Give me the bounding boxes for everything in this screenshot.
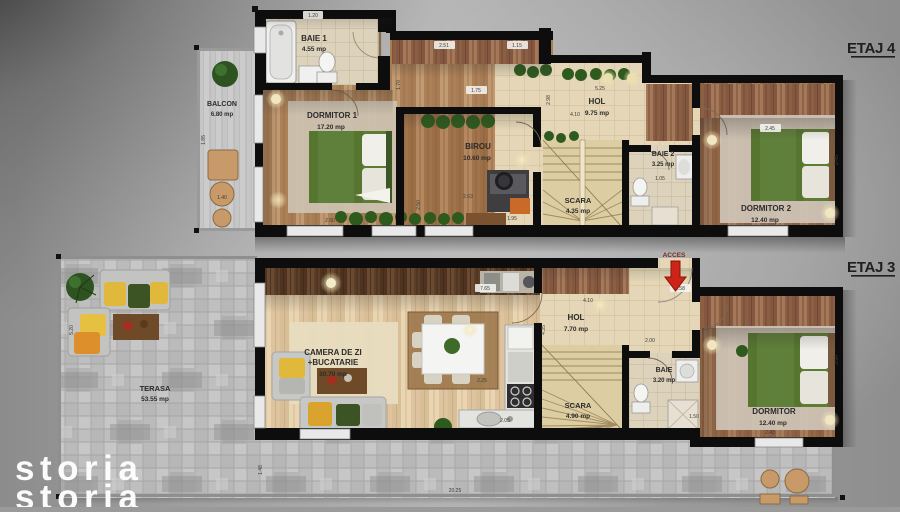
svg-text:12.40 mp: 12.40 mp <box>751 217 779 224</box>
svg-text:BALCON: BALCON <box>207 101 237 108</box>
svg-text:1.20: 1.20 <box>308 13 318 19</box>
svg-text:BAIE 2: BAIE 2 <box>652 151 675 158</box>
svg-text:5.25: 5.25 <box>595 86 605 92</box>
svg-text:53.55 mp: 53.55 mp <box>141 396 169 403</box>
svg-text:BAIE 1: BAIE 1 <box>301 34 327 43</box>
svg-text:4.90 mp: 4.90 mp <box>566 413 590 420</box>
svg-text:DORMITOR 2: DORMITOR 2 <box>741 204 792 213</box>
svg-text:BAIE: BAIE <box>656 367 673 374</box>
svg-text:ETAJ 4: ETAJ 4 <box>847 40 896 57</box>
svg-text:1.48: 1.48 <box>258 465 264 475</box>
svg-text:4.35 mp: 4.35 mp <box>566 208 590 215</box>
svg-text:4.55 mp: 4.55 mp <box>302 46 326 53</box>
svg-text:4.10: 4.10 <box>570 112 580 118</box>
svg-text:20.25: 20.25 <box>449 488 462 494</box>
svg-text:9.75 mp: 9.75 mp <box>585 110 609 117</box>
svg-text:1.75: 1.75 <box>471 88 481 94</box>
svg-text:2.45: 2.45 <box>765 126 775 132</box>
svg-text:7.70 mp: 7.70 mp <box>564 326 588 333</box>
svg-text:ACCES: ACCES <box>663 252 686 259</box>
svg-text:12.40 mp: 12.40 mp <box>759 420 787 427</box>
svg-text:storia: storia <box>15 478 143 507</box>
svg-text:2.63: 2.63 <box>463 194 473 200</box>
svg-text:2.25: 2.25 <box>477 378 487 384</box>
svg-text:2.05: 2.05 <box>500 418 510 424</box>
svg-text:HOL: HOL <box>589 97 606 106</box>
svg-text:1.50: 1.50 <box>689 414 699 420</box>
svg-text:2.50: 2.50 <box>325 218 335 224</box>
svg-text:TERASA: TERASA <box>140 384 171 393</box>
svg-text:SCARA: SCARA <box>565 401 592 410</box>
svg-text:6.80 mp: 6.80 mp <box>211 112 234 118</box>
svg-text:17.20 mp: 17.20 mp <box>317 124 345 131</box>
svg-text:1.95: 1.95 <box>507 216 517 222</box>
svg-text:2.45: 2.45 <box>834 155 840 165</box>
svg-text:2.98: 2.98 <box>546 95 552 105</box>
svg-text:2.50: 2.50 <box>416 200 422 210</box>
svg-text:DORMITOR: DORMITOR <box>752 407 796 416</box>
svg-text:2.43: 2.43 <box>765 430 775 436</box>
svg-text:4.35: 4.35 <box>541 325 547 335</box>
svg-text:HOL: HOL <box>568 313 585 322</box>
svg-text:DORMITOR 1: DORMITOR 1 <box>307 111 358 120</box>
svg-text:30.70 mp: 30.70 mp <box>319 371 347 378</box>
svg-text:SCARA: SCARA <box>565 196 592 205</box>
svg-text:1.15: 1.15 <box>512 43 522 49</box>
svg-text:BIROU: BIROU <box>465 142 491 151</box>
svg-text:1.40: 1.40 <box>217 195 227 201</box>
svg-text:10.60 mp: 10.60 mp <box>463 155 491 162</box>
svg-text:1.85: 1.85 <box>201 135 207 145</box>
svg-text:ETAJ 3: ETAJ 3 <box>847 259 895 276</box>
svg-text:7.65: 7.65 <box>480 286 490 292</box>
svg-text:5.20: 5.20 <box>69 325 75 335</box>
svg-text:1.70: 1.70 <box>396 80 402 90</box>
svg-text:3.25 mp: 3.25 mp <box>652 162 675 168</box>
svg-text:2.00: 2.00 <box>645 338 655 344</box>
svg-text:1.05: 1.05 <box>655 176 665 182</box>
svg-text:+BUCATARIE: +BUCATARIE <box>308 358 359 367</box>
svg-text:3.94: 3.94 <box>834 355 840 365</box>
svg-text:3.20 mp: 3.20 mp <box>653 378 676 384</box>
svg-text:CAMERA DE ZI: CAMERA DE ZI <box>304 348 361 357</box>
svg-text:2.51: 2.51 <box>439 43 449 49</box>
